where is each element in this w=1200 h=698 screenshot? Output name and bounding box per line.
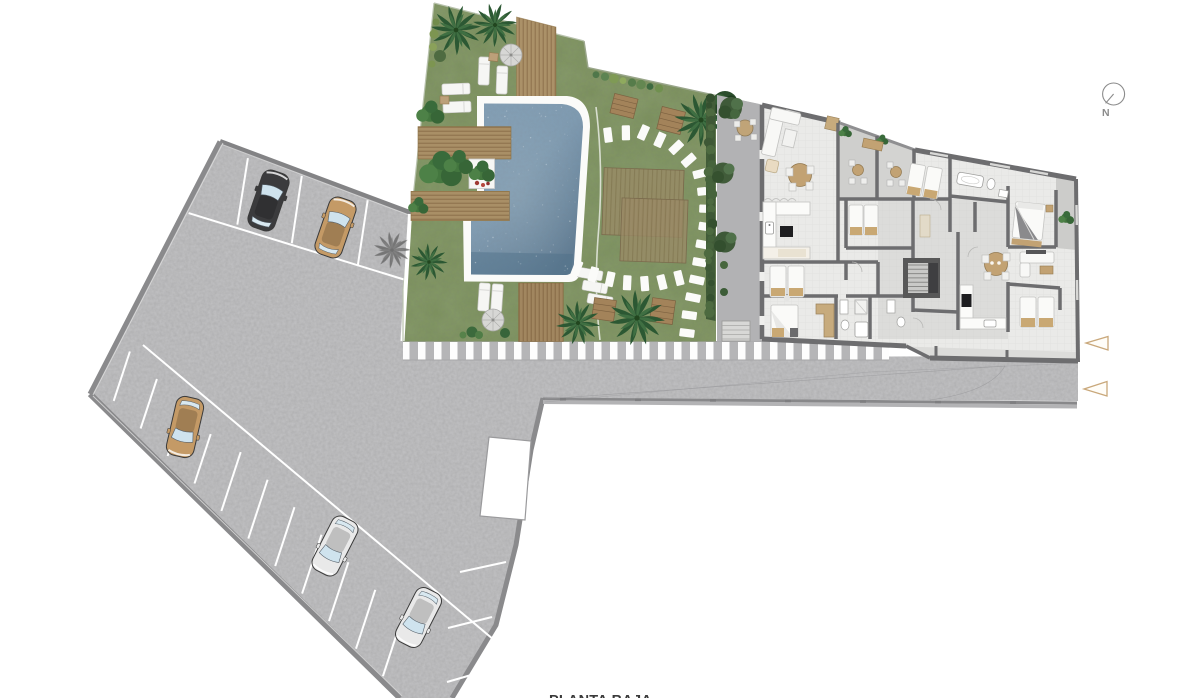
svg-text:PLANTA BAJA: PLANTA BAJA xyxy=(549,693,652,698)
svg-text:N: N xyxy=(1102,107,1110,119)
